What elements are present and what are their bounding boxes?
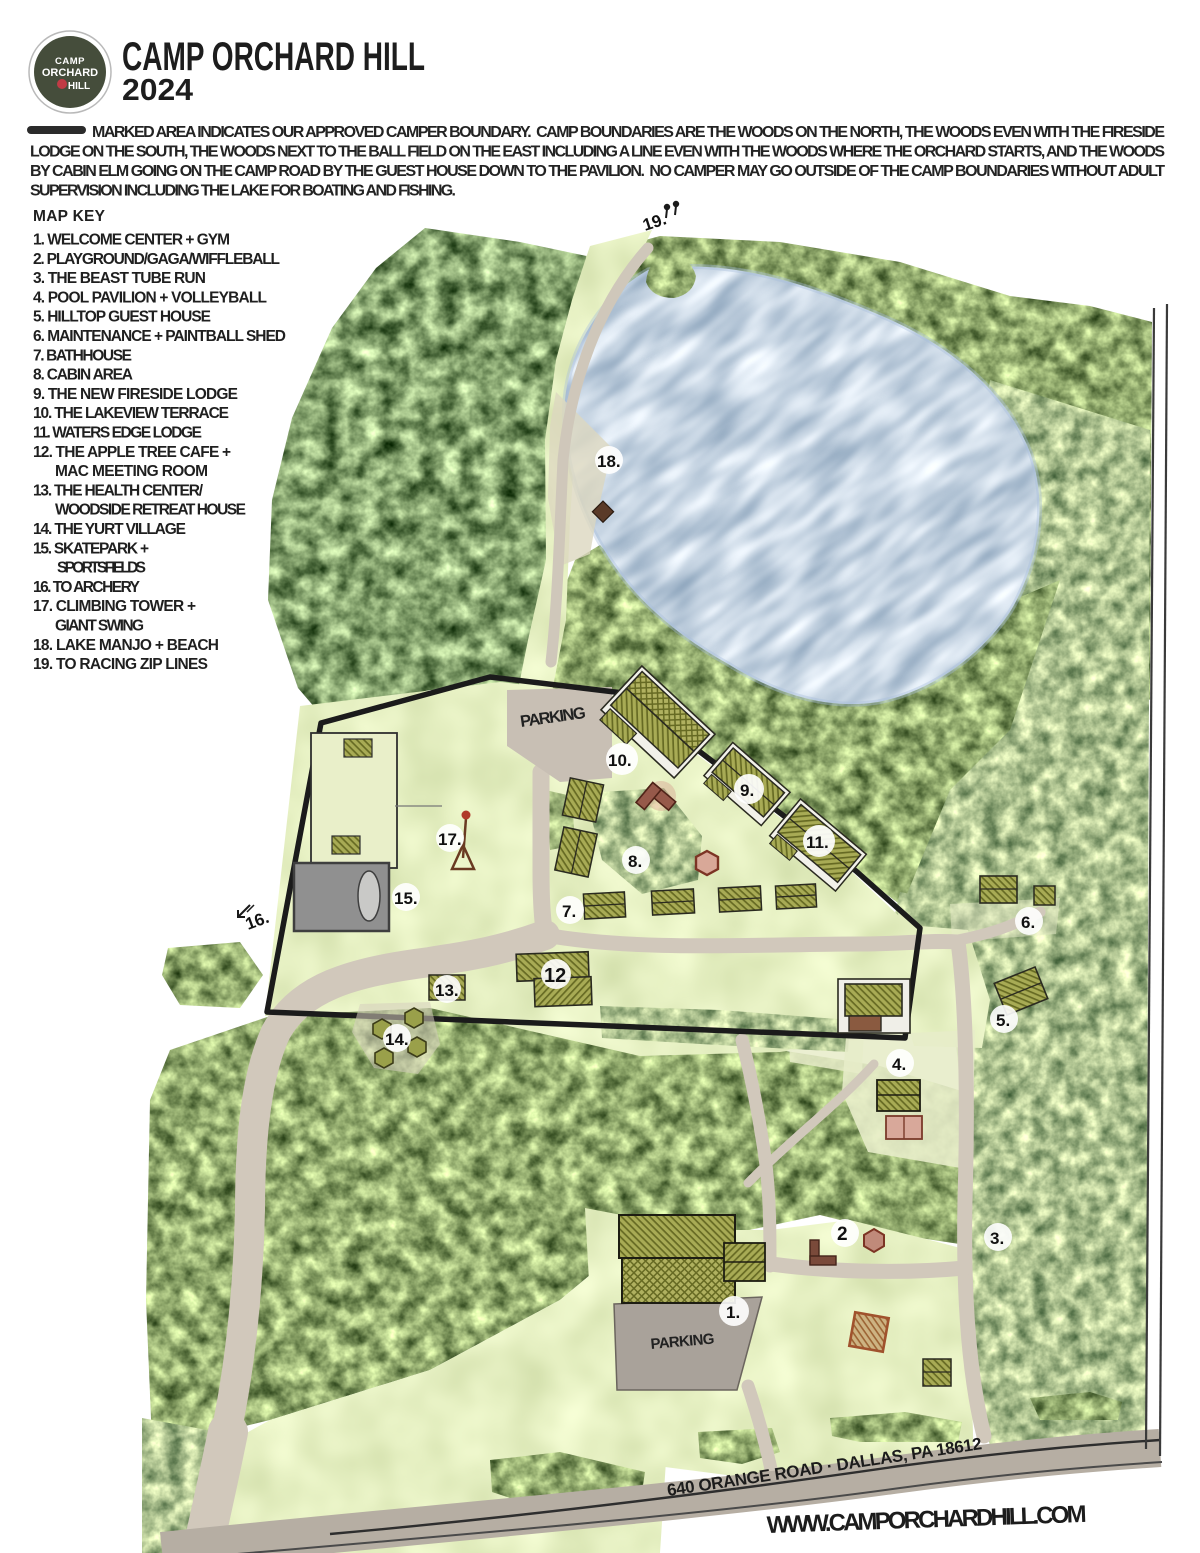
svg-text:CAMP: CAMP [55,56,85,67]
svg-text:8. CABIN AREA: 8. CABIN AREA [33,367,133,384]
svg-text:10.: 10. [608,751,632,770]
svg-text:ORCHARD: ORCHARD [42,67,98,79]
svg-text:17. CLIMBING TOWER +: 17. CLIMBING TOWER + [33,598,196,615]
svg-text:15.: 15. [394,889,418,908]
svg-text:13.: 13. [435,981,459,1000]
svg-text:5.: 5. [996,1011,1010,1030]
svg-text:2: 2 [837,1224,848,1245]
svg-text:3. THE BEAST TUBE RUN: 3. THE BEAST TUBE RUN [33,270,206,287]
svg-text:9.: 9. [740,781,754,800]
svg-text:6. MAINTENANCE + PAINTBALL SHE: 6. MAINTENANCE + PAINTBALL SHED [33,328,286,345]
svg-text:9. THE NEW FIRESIDE LODGE: 9. THE NEW FIRESIDE LODGE [33,386,238,403]
svg-text:19. TO RACING ZIP LINES: 19. TO RACING ZIP LINES [33,656,208,673]
svg-text:17.: 17. [438,830,462,849]
svg-text:14.: 14. [385,1030,409,1049]
svg-text:1. WELCOME CENTER + GYM: 1. WELCOME CENTER + GYM [33,232,230,249]
svg-text:GIANT SWING: GIANT SWING [55,618,144,635]
svg-text:10. THE LAKEVIEW TERRACE: 10. THE LAKEVIEW TERRACE [33,405,229,422]
svg-text:2. PLAYGROUND/GAGA/WIFFLEBALL: 2. PLAYGROUND/GAGA/WIFFLEBALL [33,251,280,268]
svg-text:4. POOL PAVILION + VOLLEYBALL: 4. POOL PAVILION + VOLLEYBALL [33,289,267,306]
svg-text:WOODSIDE RETREAT HOUSE: WOODSIDE RETREAT HOUSE [55,502,246,519]
svg-text:12. THE APPLE TREE CAFE +: 12. THE APPLE TREE CAFE + [33,444,231,461]
svg-text:13. THE HEALTH CENTER/: 13. THE HEALTH CENTER/ [33,482,204,499]
svg-text:BY CABIN ELM GOING ON THE CAMP: BY CABIN ELM GOING ON THE CAMP ROAD BY T… [30,163,1165,180]
svg-text:4.: 4. [892,1055,906,1074]
svg-text:11.: 11. [806,833,829,852]
svg-text:2024: 2024 [122,72,194,107]
svg-text:18.: 18. [597,452,621,471]
svg-text:7.: 7. [562,902,576,921]
svg-text:MAC MEETING ROOM: MAC MEETING ROOM [55,463,208,480]
svg-text:MARKED AREA INDICATES OUR APPR: MARKED AREA INDICATES OUR APPROVED CAMPE… [92,124,1165,141]
svg-text:12: 12 [544,965,566,987]
svg-text:3.: 3. [990,1229,1004,1248]
svg-text:6.: 6. [1021,913,1035,932]
svg-text:SUPERVISION INCLUDING THE LAKE: SUPERVISION INCLUDING THE LAKE FOR BOATI… [30,183,456,200]
svg-text:LODGE ON THE SOUTH, THE WOODS: LODGE ON THE SOUTH, THE WOODS NEXT TO TH… [30,144,1165,161]
svg-text:1.: 1. [726,1303,740,1322]
svg-text:5. HILLTOP GUEST HOUSE: 5. HILLTOP GUEST HOUSE [33,309,211,326]
svg-text:11. WATERS EDGE LODGE: 11. WATERS EDGE LODGE [33,425,202,442]
svg-text:7. BATHHOUSE: 7. BATHHOUSE [33,347,132,364]
svg-text:15. SKATEPARK +: 15. SKATEPARK + [33,540,149,557]
svg-text:16. TO ARCHERY: 16. TO ARCHERY [33,579,141,596]
svg-text:8.: 8. [628,852,642,871]
svg-text:18. LAKE MANJO + BEACH: 18. LAKE MANJO + BEACH [33,637,219,654]
svg-text:HILL: HILL [68,81,90,92]
svg-text:MAP KEY: MAP KEY [33,208,106,225]
svg-text:SPORTSFIELDS: SPORTSFIELDS [57,560,146,577]
svg-text:14. THE YURT VILLAGE: 14. THE YURT VILLAGE [33,521,186,538]
